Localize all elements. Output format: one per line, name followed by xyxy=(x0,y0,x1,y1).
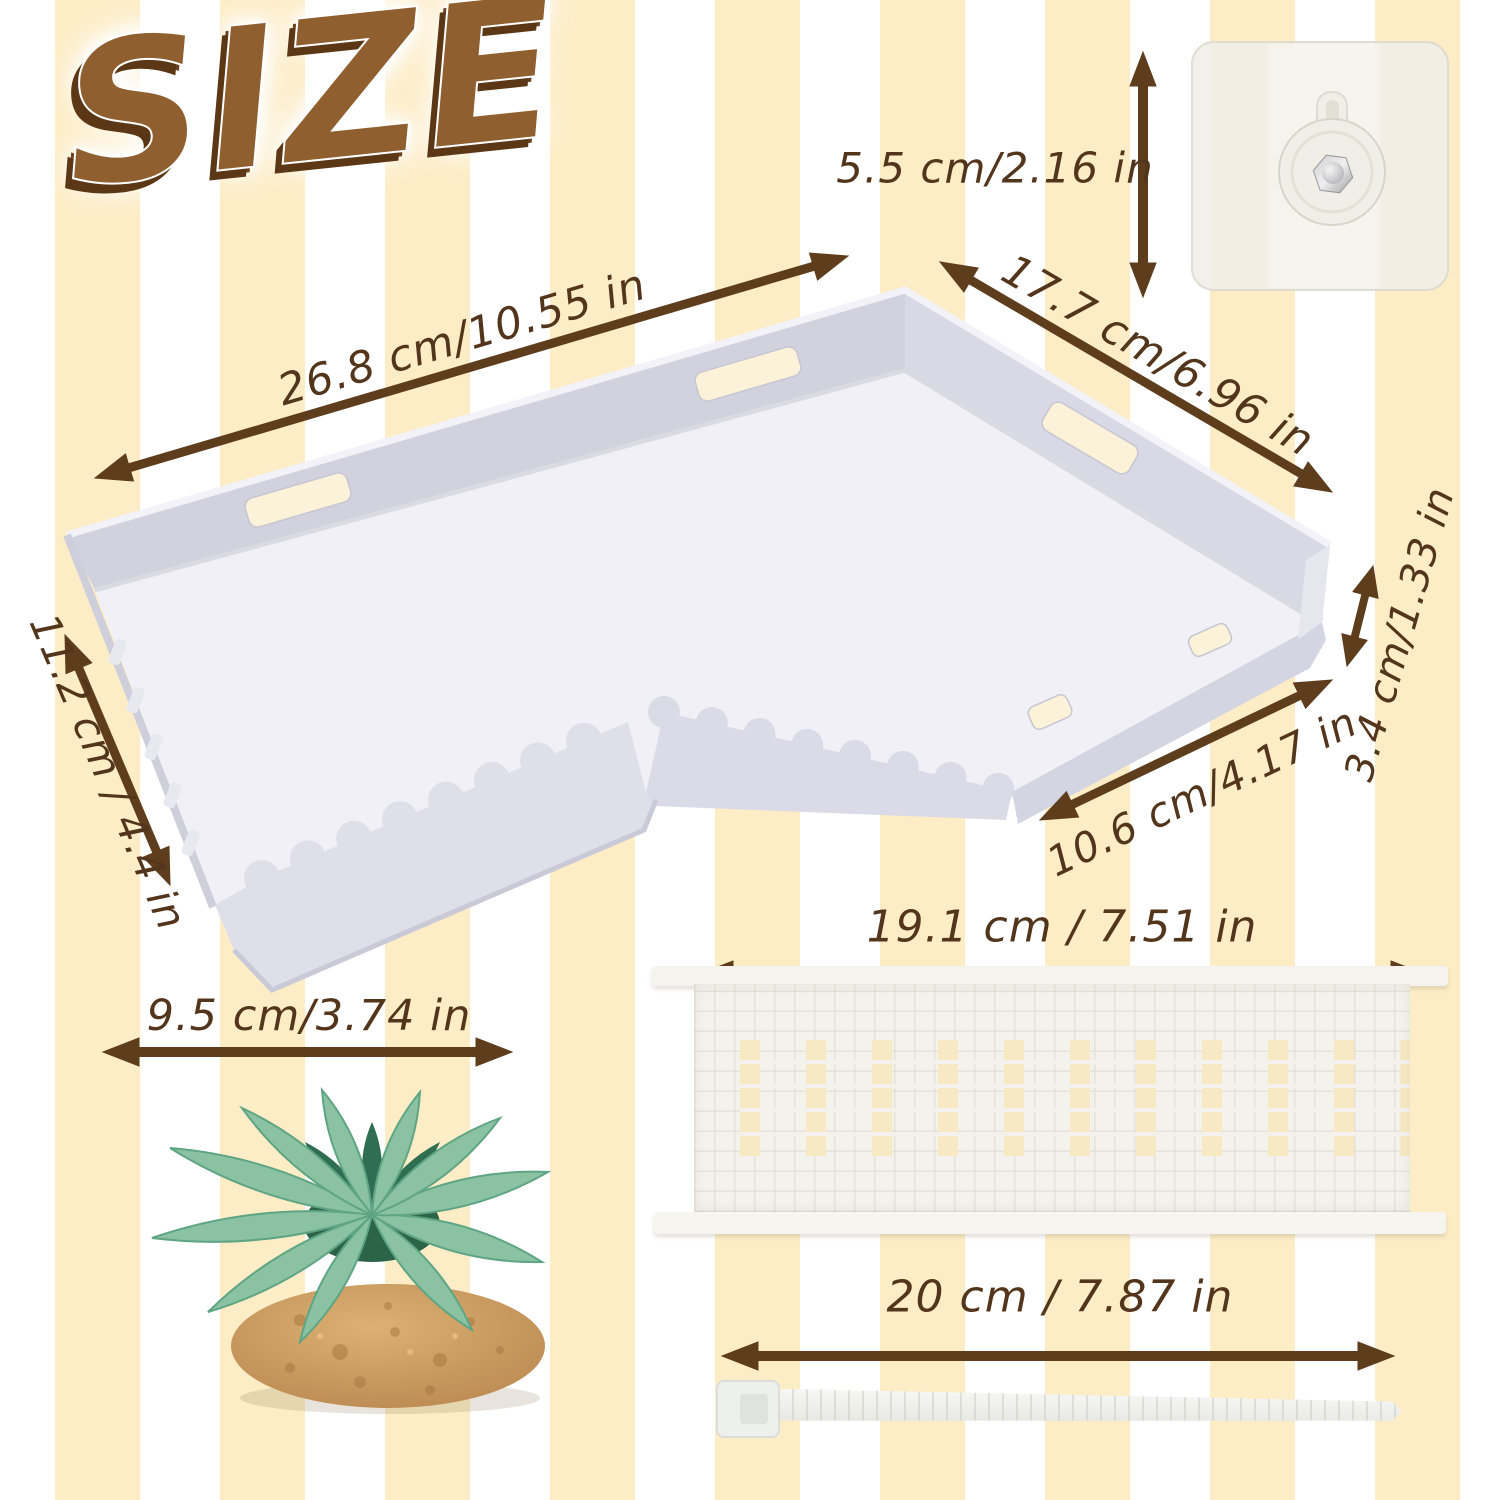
hook-bolt xyxy=(1322,162,1344,184)
size-infographic: SIZE 5.5 cm/2.16 in 26.8 cm/10.55 in 17.… xyxy=(0,0,1500,1500)
plant-image xyxy=(152,1090,548,1414)
arrow-plant-width xyxy=(103,1038,512,1066)
platform-bottom-rail xyxy=(654,1212,1446,1234)
platform-top-rail xyxy=(652,966,1448,986)
corner-shelf-image xyxy=(67,290,1330,990)
dimension-label-hook-height: 5.5 cm/2.16 in xyxy=(836,144,1153,193)
cable-tie-head xyxy=(716,1380,780,1438)
mesh-platform-image xyxy=(694,984,1410,1212)
dimension-label-plant-width: 9.5 cm/3.74 in xyxy=(147,991,472,1041)
cable-tie-head-hole xyxy=(740,1394,768,1424)
arrow-tie-length xyxy=(722,1342,1394,1370)
adhesive-hook-image xyxy=(1192,42,1448,290)
dimension-label-tie-length: 20 cm / 7.87 in xyxy=(887,1272,1234,1323)
dimension-label-platform-length: 19.1 cm / 7.51 in xyxy=(867,902,1258,953)
